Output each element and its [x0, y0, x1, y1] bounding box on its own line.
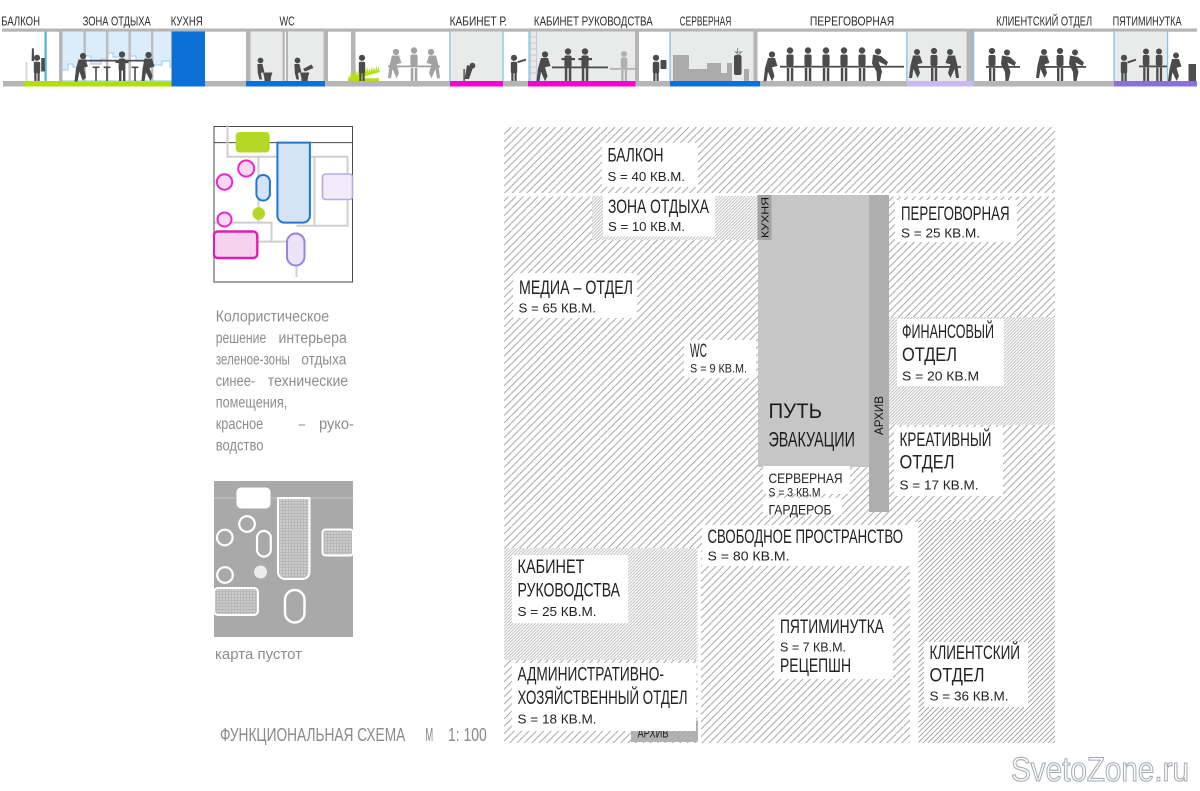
svg-text:синее-: синее-	[216, 373, 256, 390]
svg-text:ФУНКЦИОНАЛЬНАЯ СХЕМА: ФУНКЦИОНАЛЬНАЯ СХЕМА	[220, 724, 406, 745]
svg-text:СЕРВЕРНАЯ: СЕРВЕРНАЯ	[769, 470, 843, 486]
svg-text:КАБИНЕТ РУКОВОДСТВА: КАБИНЕТ РУКОВОДСТВА	[534, 14, 653, 29]
svg-text:КАБИНЕТ Р.: КАБИНЕТ Р.	[450, 14, 508, 29]
svg-text:водство: водство	[216, 437, 264, 454]
svg-text:БАЛКОН: БАЛКОН	[1, 14, 40, 29]
svg-text:РЕЦЕПШН: РЕЦЕПШН	[780, 655, 851, 677]
svg-text:S = 80 КВ.М.: S = 80 КВ.М.	[708, 549, 790, 564]
svg-text:S = 25 КВ.М.: S = 25 КВ.М.	[518, 604, 597, 619]
svg-text:1: 100: 1: 100	[448, 724, 487, 745]
svg-text:КАБИНЕТ: КАБИНЕТ	[518, 556, 585, 578]
svg-text:S = 9 КВ.М.: S = 9 КВ.М.	[690, 364, 747, 376]
svg-text:S = 36 КВ.М.: S = 36 КВ.М.	[930, 689, 1009, 704]
svg-text:отдыха: отдыха	[301, 352, 346, 369]
svg-text:WC: WC	[690, 340, 707, 362]
svg-text:СВОБОДНОЕ ПРОСТРАНСТВО: СВОБОДНОЕ ПРОСТРАНСТВО	[708, 526, 904, 548]
svg-text:БАЛКОН: БАЛКОН	[608, 145, 664, 167]
svg-text:ЭВАКУАЦИИ: ЭВАКУАЦИИ	[769, 428, 855, 452]
svg-text:ОТДЕЛ: ОТДЕЛ	[900, 452, 955, 474]
svg-text:WC: WC	[280, 14, 295, 29]
svg-text:руко-: руко-	[319, 416, 354, 433]
svg-text:SvetoZone.ru: SvetoZone.ru	[1011, 751, 1189, 789]
svg-text:–: –	[299, 416, 306, 433]
svg-text:ПЕРЕГОВОРНАЯ: ПЕРЕГОВОРНАЯ	[901, 203, 1010, 225]
svg-text:S = 20 КВ.М: S = 20 КВ.М	[902, 369, 979, 384]
svg-text:ПЕРЕГОВОРНАЯ: ПЕРЕГОВОРНАЯ	[810, 14, 894, 29]
svg-text:S = 17 КВ.М.: S = 17 КВ.М.	[900, 478, 979, 493]
svg-text:КРЕАТИВНЫЙ: КРЕАТИВНЫЙ	[900, 427, 992, 451]
svg-text:АДМИНИСТРАТИВНО-: АДМИНИСТРАТИВНО-	[518, 664, 665, 686]
svg-text:Колористическое: Колористическое	[216, 308, 329, 325]
svg-text:СЕРВЕРНАЯ: СЕРВЕРНАЯ	[680, 14, 732, 29]
svg-text:S = 25 КВ.М.: S = 25 КВ.М.	[901, 226, 980, 241]
svg-text:ЗОНА ОТДЫХА: ЗОНА ОТДЫХА	[608, 196, 709, 218]
svg-text:ПУТЬ: ПУТЬ	[769, 399, 823, 423]
svg-text:ПЯТИМИНУТКА: ПЯТИМИНУТКА	[1113, 14, 1182, 29]
svg-text:ГАРДЕРОБ: ГАРДЕРОБ	[769, 502, 832, 518]
svg-text:технические: технические	[268, 373, 348, 390]
svg-text:S = 18 КВ.М.: S = 18 КВ.М.	[518, 712, 597, 727]
svg-text:зеленое-зоны: зеленое-зоны	[216, 352, 290, 369]
svg-text:ОТДЕЛ: ОТДЕЛ	[902, 344, 957, 366]
svg-text:S = 3 КВ.М: S = 3 КВ.М	[769, 488, 821, 500]
svg-text:КУХНЯ: КУХНЯ	[171, 14, 203, 29]
svg-text:М: М	[425, 724, 433, 745]
svg-text:решение: решение	[216, 330, 267, 347]
svg-text:S = 7 КВ.М.: S = 7 КВ.М.	[780, 640, 846, 655]
svg-text:ФИНАНСОВЫЙ: ФИНАНСОВЫЙ	[902, 319, 994, 343]
svg-text:помещения,: помещения,	[216, 395, 288, 412]
svg-text:S = 65 КВ.М.: S = 65 КВ.М.	[519, 301, 597, 316]
svg-text:КЛИЕНТСКИЙ: КЛИЕНТСКИЙ	[930, 640, 1021, 664]
svg-text:S = 40 КВ.М.: S = 40 КВ.М.	[608, 169, 686, 184]
svg-text:интерьера: интерьера	[279, 330, 348, 347]
svg-text:РУКОВОДСТВА: РУКОВОДСТВА	[518, 580, 621, 602]
svg-text:ОТДЕЛ: ОТДЕЛ	[930, 665, 985, 687]
svg-text:ХОЗЯЙСТВЕННЫЙ ОТДЕЛ: ХОЗЯЙСТВЕННЫЙ ОТДЕЛ	[518, 685, 688, 709]
svg-text:S = 10 КВ.М.: S = 10 КВ.М.	[608, 219, 685, 234]
svg-text:ПЯТИМИНУТКА: ПЯТИМИНУТКА	[780, 616, 884, 638]
svg-text:ЗОНА ОТДЫХА: ЗОНА ОТДЫХА	[83, 14, 151, 29]
svg-text:красное: красное	[216, 416, 264, 433]
svg-text:МЕДИА – ОТДЕЛ: МЕДИА – ОТДЕЛ	[519, 277, 633, 299]
svg-text:КЛИЕНТСКИЙ ОТДЕЛ: КЛИЕНТСКИЙ ОТДЕЛ	[996, 14, 1092, 29]
